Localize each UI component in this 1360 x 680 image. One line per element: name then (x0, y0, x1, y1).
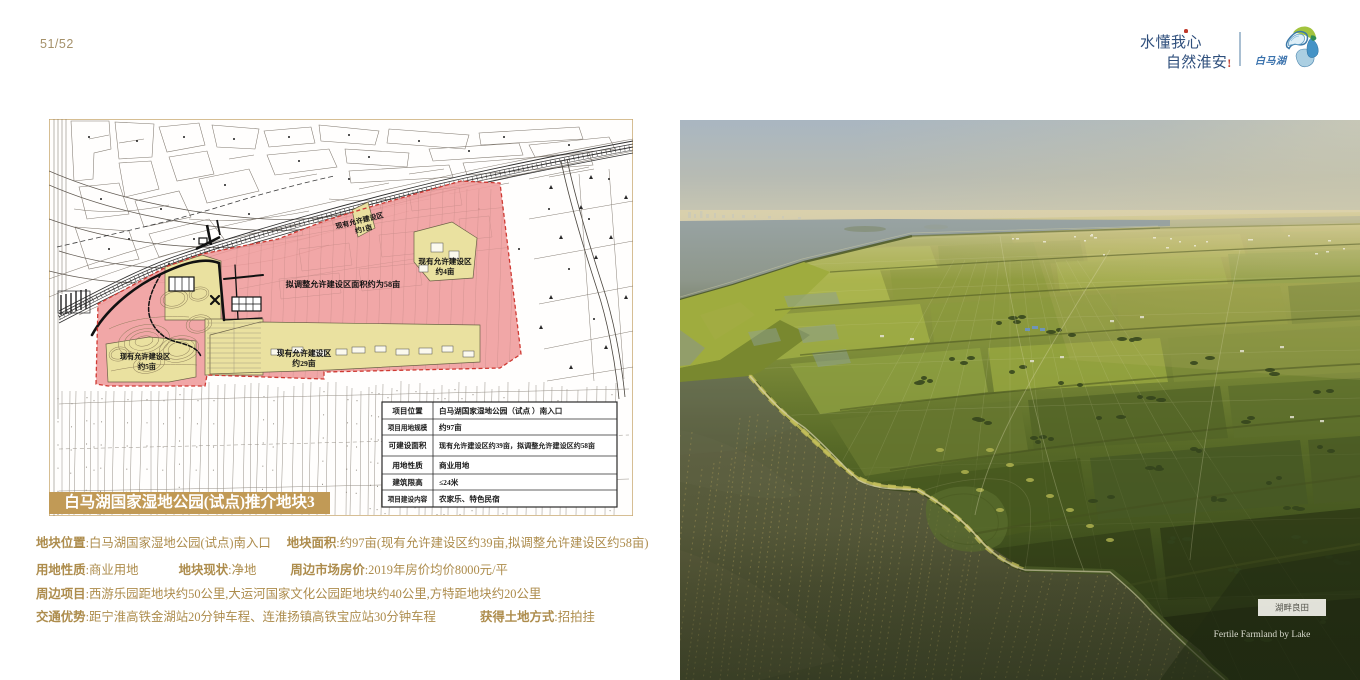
svg-text:约4亩: 约4亩 (436, 266, 455, 276)
svg-text:项目位置: 项目位置 (392, 406, 423, 416)
svg-text:约29亩: 约29亩 (292, 358, 316, 368)
svg-text:约97亩: 约97亩 (439, 422, 462, 432)
svg-text:现有允许建设区: 现有允许建设区 (418, 256, 472, 266)
svg-text:商业用地: 商业用地 (439, 460, 470, 470)
svg-text:湖畔良田: 湖畔良田 (1275, 603, 1309, 613)
svg-text:农家乐、特色民宿: 农家乐、特色民宿 (438, 494, 500, 504)
svg-text:项目用地规模: 项目用地规模 (388, 423, 428, 432)
svg-text:≤24米: ≤24米 (439, 477, 459, 487)
svg-text:拟调整允许建设区面积约为58亩: 拟调整允许建设区面积约为58亩 (286, 279, 401, 289)
svg-text:用地性质: 用地性质 (391, 460, 423, 470)
svg-text:白马湖国家湿地公园（试点 ）南入口: 白马湖国家湿地公园（试点 ）南入口 (439, 406, 562, 416)
svg-text:可建设面积: 可建设面积 (389, 440, 427, 450)
svg-text:现有允许建设区: 现有允许建设区 (277, 348, 332, 358)
svg-text:现有允许建设区: 现有允许建设区 (120, 352, 170, 361)
svg-text:建筑限高: 建筑限高 (391, 477, 423, 487)
svg-text:现有允许建设区约39亩，拟调整允许建设区约58亩: 现有允许建设区约39亩，拟调整允许建设区约58亩 (439, 441, 595, 450)
svg-text:Fertile Farmland by Lake: Fertile Farmland by Lake (1214, 630, 1311, 640)
svg-text:约5亩: 约5亩 (138, 362, 156, 371)
svg-text:项目建设内容: 项目建设内容 (388, 495, 428, 504)
